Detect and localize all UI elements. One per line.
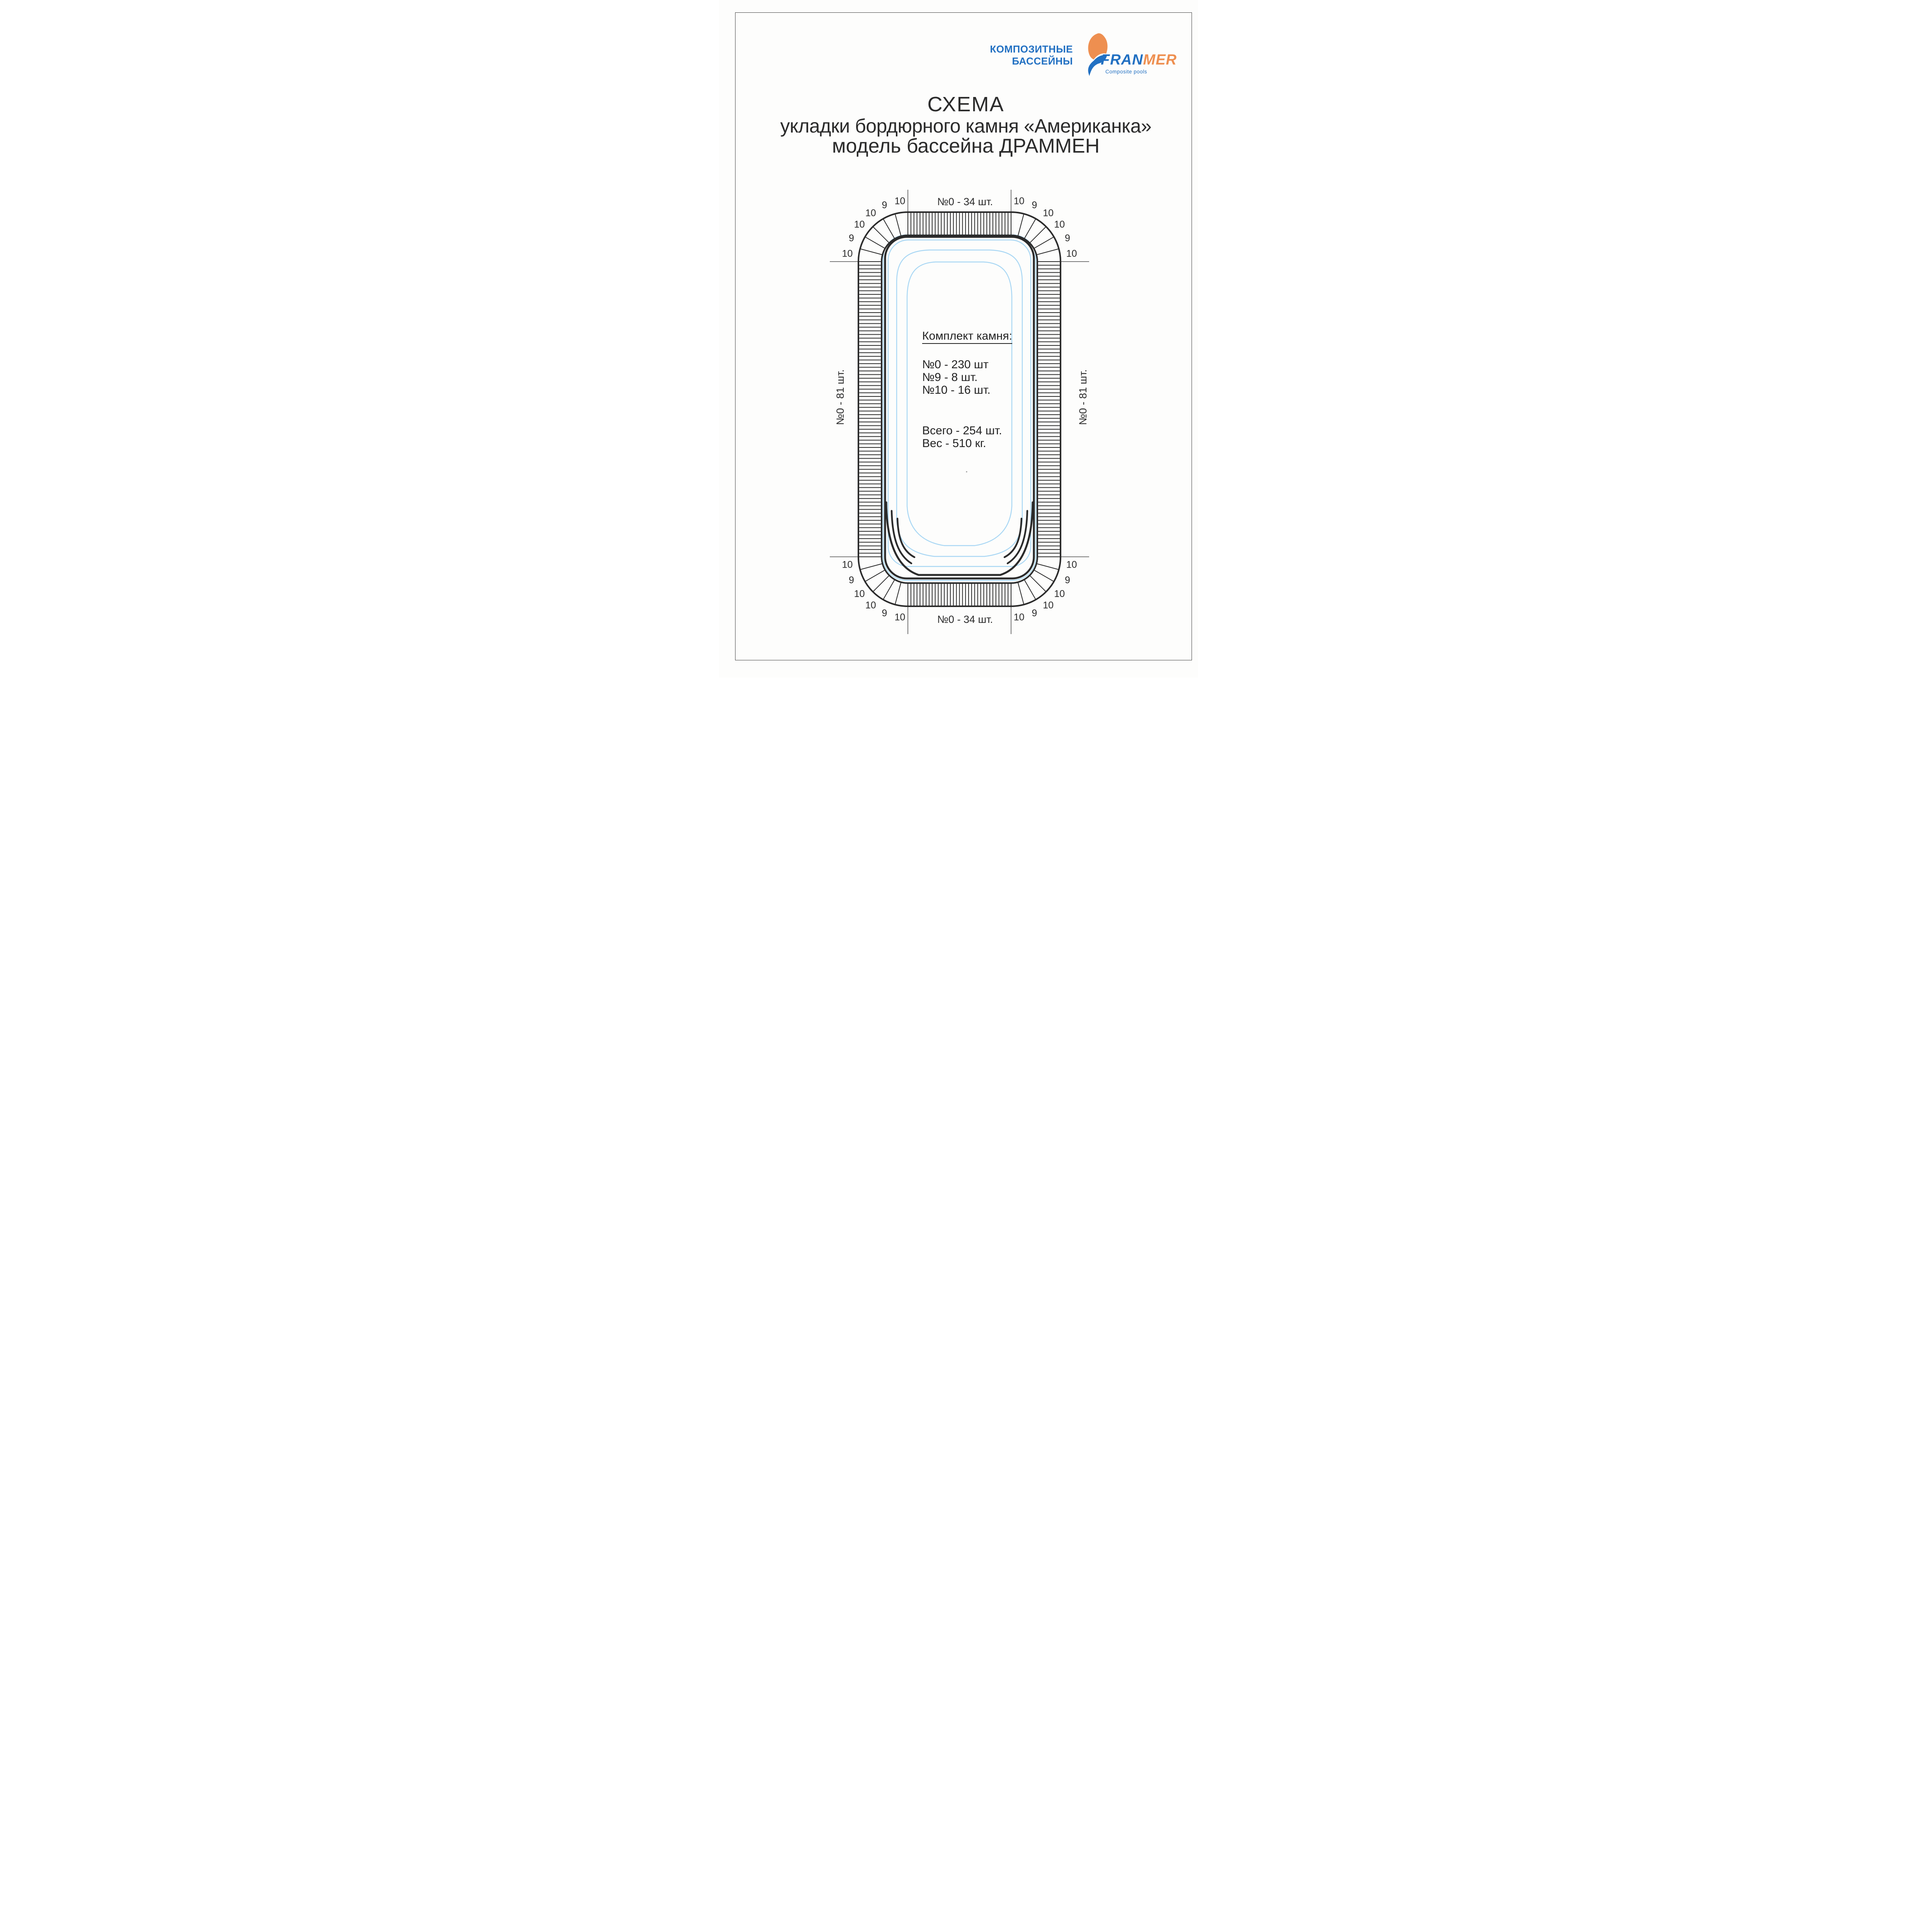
corner-stone-count: 10	[1043, 208, 1054, 219]
corner-stone-count: 10	[854, 219, 865, 230]
corner-stone-count: 9	[882, 200, 887, 211]
kit-item: №0 - 230 шт	[922, 358, 1012, 371]
corner-stone-divider	[865, 570, 885, 582]
label-left-count: №0 - 81 шт.	[834, 369, 846, 425]
corner-stone-count: 9	[1065, 575, 1070, 586]
corner-stone-divider	[873, 226, 889, 243]
pool-step-hook-left-outer	[892, 511, 911, 563]
corner-stone-count: 10	[865, 600, 876, 611]
corner-stone-divider	[860, 564, 882, 570]
corner-stone-divider	[883, 580, 895, 600]
label-right-count: №0 - 81 шт.	[1077, 369, 1089, 425]
corner-stone-divider	[883, 219, 895, 239]
corner-stone-divider	[1037, 249, 1059, 255]
corner-stone-divider	[895, 582, 901, 605]
corner-stone-count: 9	[1032, 200, 1037, 211]
label-bottom-count: №0 - 34 шт.	[937, 614, 993, 625]
corner-stone-count: 10	[894, 196, 905, 206]
kit-heading-text: Комплект камня:	[922, 330, 1012, 344]
pool-step-hook-right-outer	[1008, 511, 1027, 563]
corner-stone-count: 9	[882, 608, 887, 619]
corner-stone-divider	[1034, 570, 1054, 582]
corner-stone-count: 10	[1066, 248, 1077, 259]
corner-stone-divider	[873, 575, 889, 592]
kit-item: №10 - 16 шт.	[922, 384, 1012, 396]
corner-stone-divider	[860, 249, 882, 255]
corner-stone-divider	[1034, 237, 1054, 248]
corner-stone-count: 10	[842, 248, 853, 259]
corner-stone-count: 10	[865, 208, 876, 219]
corner-stone-count: 10	[842, 560, 853, 570]
corner-stone-count: 9	[849, 575, 854, 586]
kit-heading: Комплект камня:	[922, 330, 1012, 343]
corner-stone-divider	[1024, 219, 1036, 239]
kit-weight: Вес - 510 кг.	[922, 437, 1012, 450]
corner-stone-divider	[1030, 226, 1046, 243]
corner-stone-count: 9	[849, 233, 854, 244]
corner-stone-count: 9	[1065, 233, 1070, 244]
corner-stone-count: 10	[1054, 219, 1065, 230]
corner-stone-count: 10	[1014, 196, 1025, 206]
corner-stone-count: 9	[1032, 608, 1037, 619]
kit-item: №9 - 8 шт.	[922, 371, 1012, 384]
corner-stone-count: 10	[1043, 600, 1054, 611]
pool-floor-dot	[966, 471, 967, 472]
corner-stone-divider	[1030, 575, 1046, 592]
page: КОМПОЗИТНЫЕ БАССЕЙНЫ FRANMER Composite p…	[719, 0, 1198, 678]
corner-stone-divider	[1024, 580, 1036, 600]
corner-stone-count: 10	[1054, 588, 1065, 599]
corner-stone-divider	[865, 237, 885, 248]
corner-stone-divider	[1018, 214, 1024, 236]
kit-total: Всего - 254 шт.	[922, 424, 1012, 437]
corner-stone-count: 10	[1014, 612, 1025, 623]
corner-stone-count: 10	[854, 588, 865, 599]
corner-stone-count: 10	[894, 612, 905, 623]
corner-stone-count: 10	[1066, 560, 1077, 570]
corner-stone-divider	[1018, 582, 1024, 605]
stone-kit-panel: Комплект камня: №0 - 230 шт №9 - 8 шт. №…	[922, 330, 1012, 450]
corner-stone-divider	[895, 214, 901, 236]
label-top-count: №0 - 34 шт.	[937, 196, 993, 207]
kit-gap	[922, 396, 1012, 424]
corner-stone-divider	[1037, 564, 1059, 570]
